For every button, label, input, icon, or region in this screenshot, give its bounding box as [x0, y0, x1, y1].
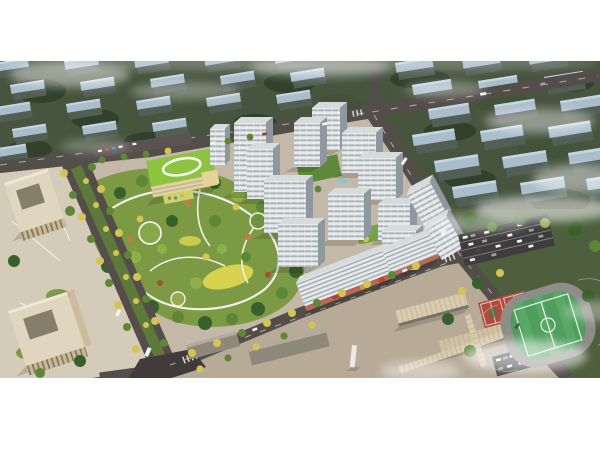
aerial-rendering [0, 61, 600, 378]
page [0, 0, 600, 450]
rendering-canvas [0, 61, 600, 378]
